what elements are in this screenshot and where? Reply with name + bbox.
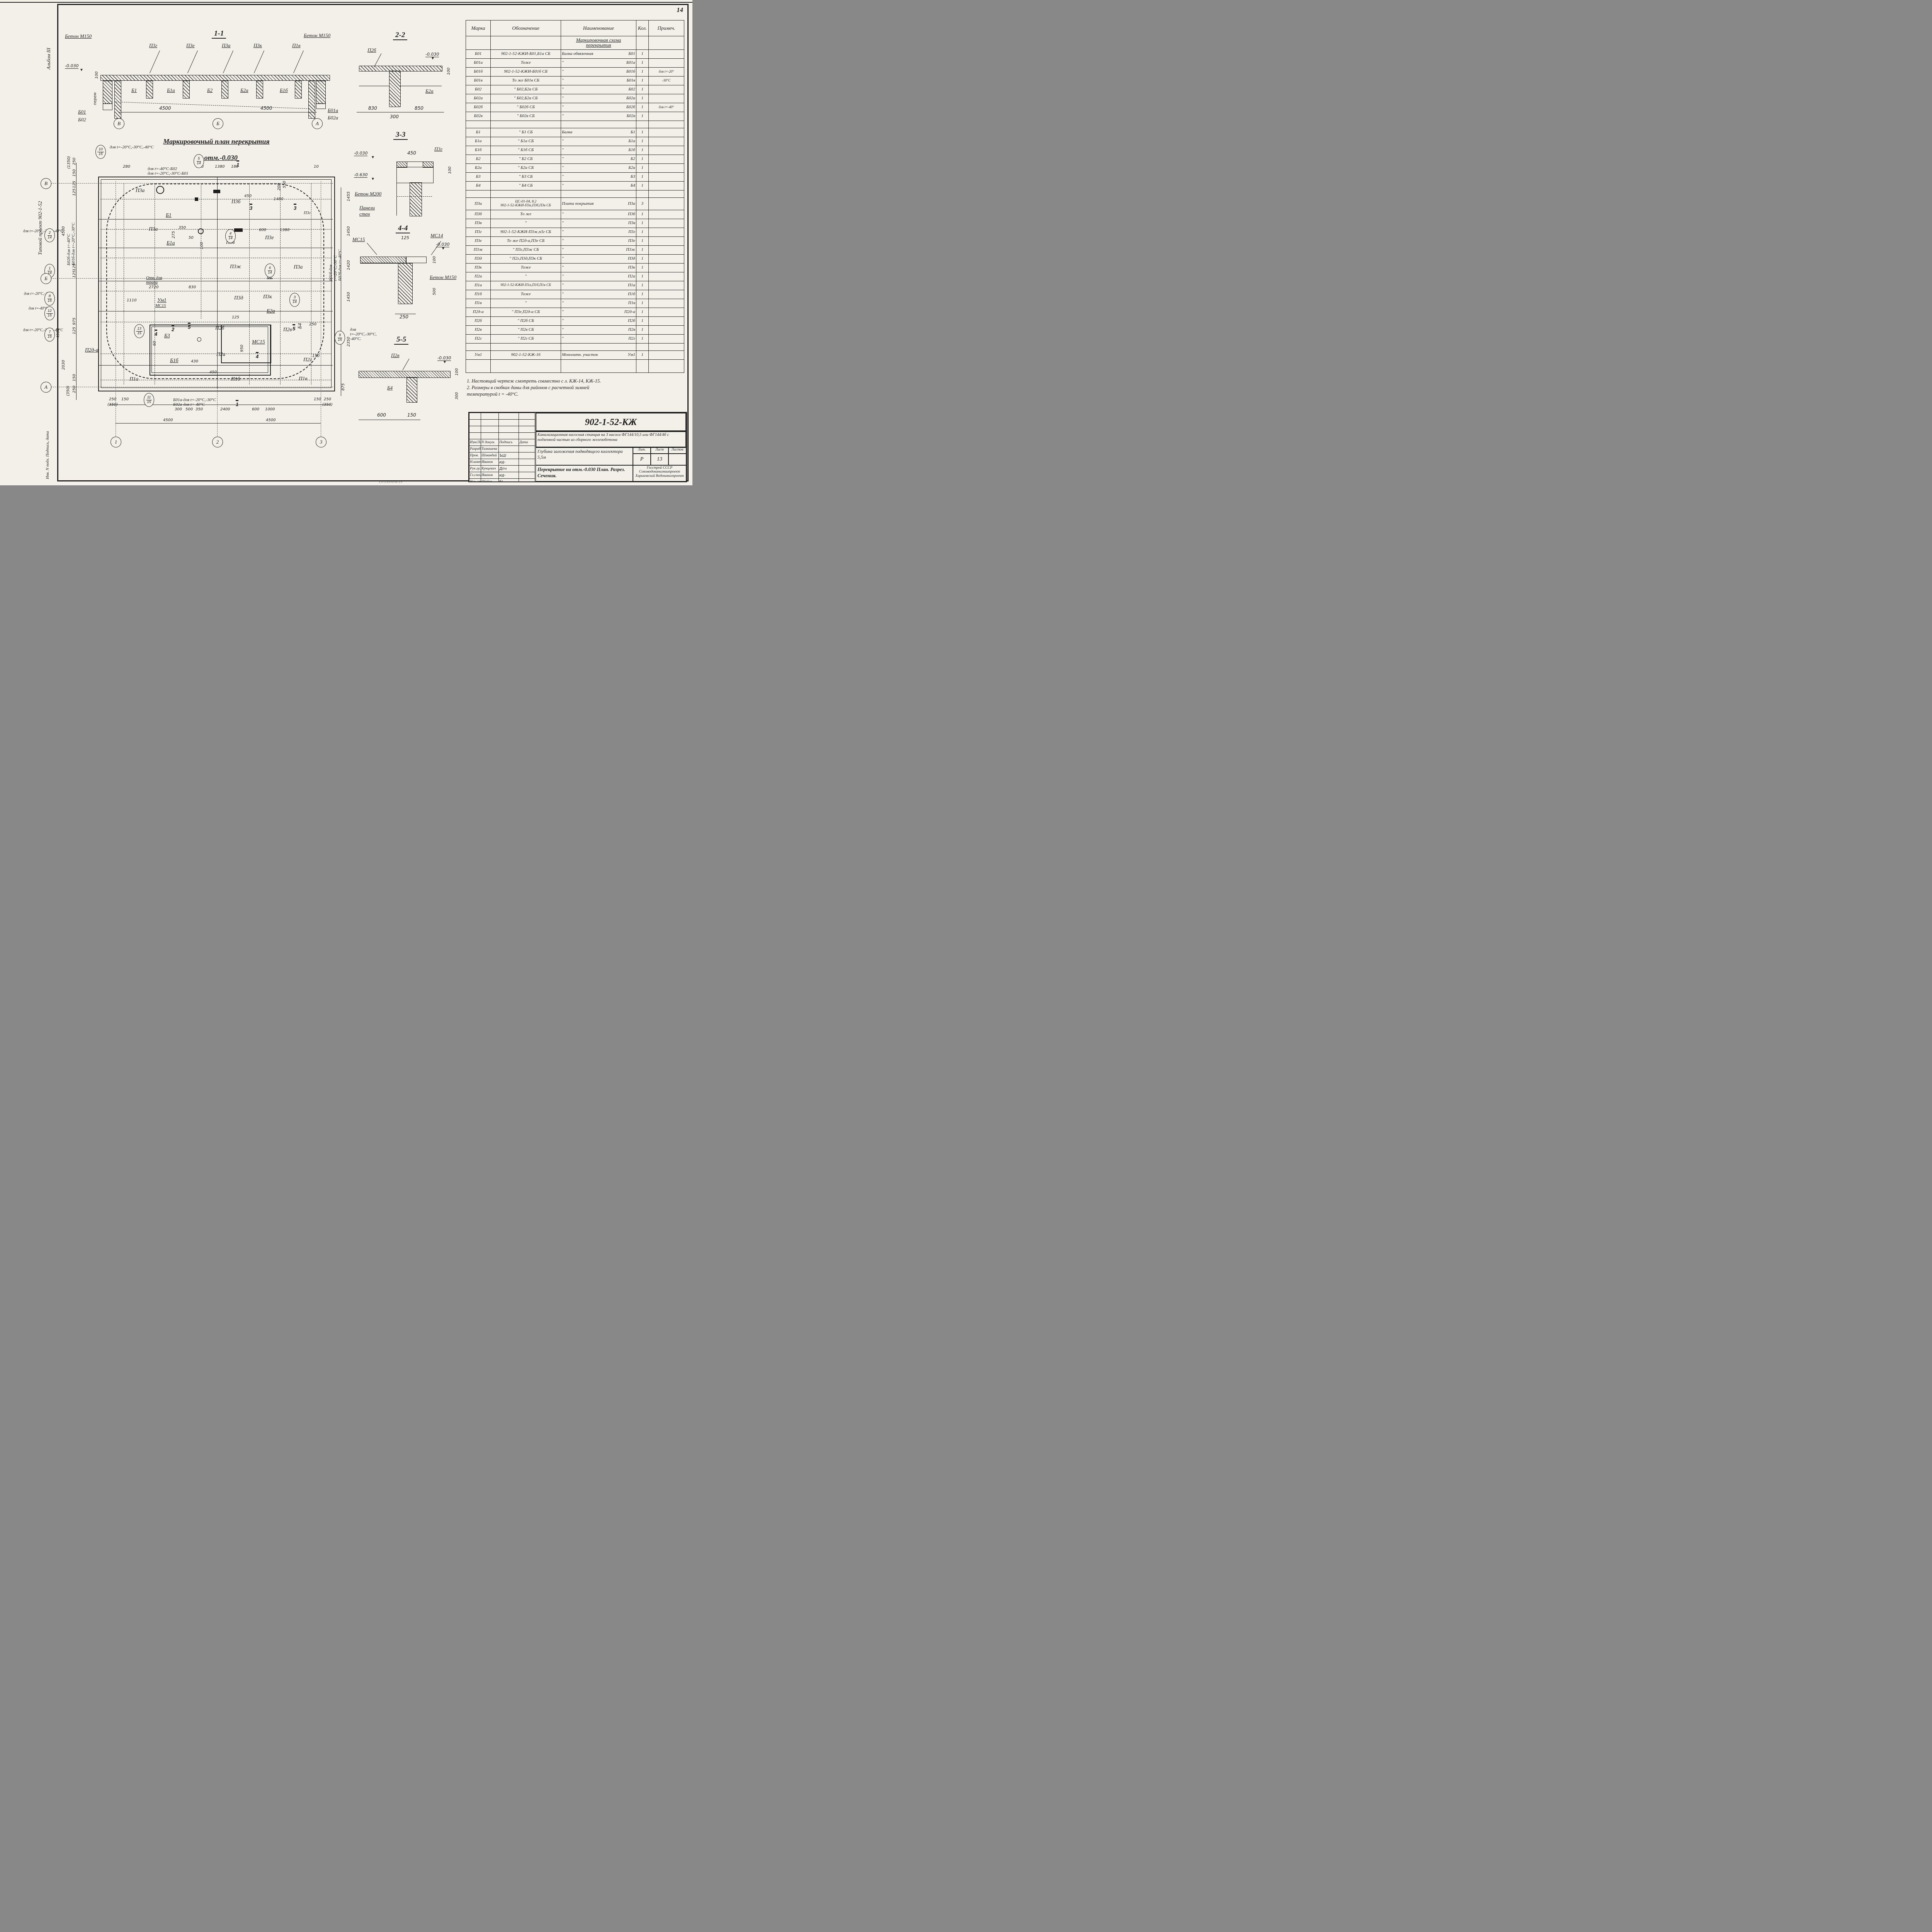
section-cut-mark: 2 (172, 325, 174, 332)
callout-denominator: 15 (137, 332, 141, 335)
plan-callout: 1315 (134, 324, 145, 338)
col-header: Примеч. (648, 20, 684, 36)
empty-cell (561, 190, 636, 198)
plan-axis-circle: 2 (212, 437, 223, 447)
beam-label: Б1б (280, 87, 288, 94)
empty-cell (491, 344, 561, 351)
qty-cell: 3 (636, 198, 648, 210)
qty-cell: 1 (636, 128, 648, 137)
note-cell (648, 351, 684, 360)
plan-canvas: Маркировочный план перекрытия на отм.-0.… (23, 129, 363, 454)
section-cut-mark: 1 (236, 160, 239, 168)
leader-line (403, 359, 410, 370)
qty-cell: 1 (636, 290, 648, 299)
note-cell (648, 137, 684, 146)
spec-row: П1в""П1в1 (466, 299, 684, 308)
plan-panel-label: МС15 (155, 303, 166, 308)
dim-300: 300 (390, 114, 399, 119)
qty-cell: 1 (636, 173, 648, 182)
plan-dimension: (350) (322, 403, 333, 407)
name-text: " (562, 301, 564, 306)
beam-flange-line (400, 86, 442, 86)
callout-numerator: 6 (268, 266, 272, 270)
mark-cell: Б02 (466, 85, 491, 94)
slab-label: П2б (367, 47, 376, 53)
staff-row: Пров.ШмандийЪШ (469, 452, 535, 459)
beam-label: Б4 (387, 385, 393, 391)
spec-row: Б02" Б02,Б2а СБ"Б021 (466, 85, 684, 94)
designation-cell: ЦС-01-04, 8.2 902-1-52-КЖИ-П3а,П3б,П3в С… (491, 198, 561, 210)
staff-name: Шмандий (481, 452, 499, 459)
spec-row: П2в" П2в СБ"П2в1 (466, 326, 684, 335)
designation-cell: " Б2 СБ (491, 155, 561, 164)
spec-row: Б1" Б1 СББалкаБ11 (466, 128, 684, 137)
qty-cell: 1 (636, 219, 648, 228)
designation-cell: " П2в СБ (491, 326, 561, 335)
callout-denominator: 15 (48, 314, 52, 318)
dim-variable: перем (94, 92, 98, 105)
qty-cell: 1 (636, 228, 648, 237)
plan-dimension: 2400 (220, 408, 230, 412)
name-mark: П1в (628, 301, 635, 306)
designation-cell: " П2б СБ (491, 317, 561, 326)
name-mark: Б2 (631, 157, 635, 162)
drawing-sheet: Альбом III Типовой проект 902-1-52 Инв. … (0, 0, 692, 485)
name-text: Плита покрытия (562, 202, 594, 206)
name-wrap: "Б1б (562, 148, 635, 153)
plan-panel-label: П3а (294, 264, 303, 270)
name-mark: Б1а (628, 139, 635, 144)
empty-cell (636, 190, 648, 198)
empty-cell (469, 426, 481, 433)
name-wrap: "Б01в (562, 78, 635, 83)
plan-panel-label: П1в (299, 376, 307, 382)
plan-dimension: 280 (123, 165, 130, 169)
spec-spacer-row (466, 344, 684, 351)
concrete-note: Бетон М150 (430, 274, 456, 281)
staff-role: Рук.гр. (469, 466, 481, 472)
name-text: " (562, 310, 564, 315)
name-mark: П3в (628, 221, 635, 226)
plan-axis-circle: 1 (111, 437, 121, 447)
plan-dimension: 100 (200, 242, 204, 249)
empty-cell (499, 420, 519, 426)
elevation-flag-icon: ▼ (80, 68, 83, 72)
plan-callout: 514 (194, 154, 204, 168)
section-3-3: 3-3 -0.030 ▼ -0.630 ▼ 450 П3г 100 Бетон … (351, 131, 460, 223)
revision-empty-row (469, 433, 535, 439)
name-cell: "Б01в (561, 77, 636, 85)
spec-row: Б01вТо же Б01в СБ"Б01в1-30°C (466, 77, 684, 85)
plan-callout: 715 (44, 328, 55, 342)
beam-line (99, 248, 333, 248)
plan-callout: 1215 (44, 306, 55, 320)
name-wrap: "Б02б (562, 105, 635, 110)
callout-numerator: 9 (338, 333, 342, 338)
plan-dimension: 1380 (280, 228, 289, 233)
name-text: " (562, 212, 564, 217)
name-text: " (562, 292, 564, 297)
empty-cell (648, 36, 684, 50)
note-cell (648, 228, 684, 237)
revision-rows: Изм/ЛистN докум.ПодписьДатаРазраб.Тимаше… (469, 413, 535, 482)
joint-dashed-v (311, 184, 311, 384)
name-cell: Балка обвязочнаяБ01 (561, 50, 636, 59)
designation-cell: То же П2д-а,П3е СБ (491, 237, 561, 246)
doc-number-cell: 902-1-52-КЖ (536, 413, 686, 431)
name-mark: П3ж (626, 248, 635, 252)
callout-numerator: 5 (197, 157, 201, 161)
title-block-left: Изм/ЛистN докум.ПодписьДатаРазраб.Тимаше… (469, 413, 536, 481)
note-cell (648, 219, 684, 228)
note-cell (648, 94, 684, 103)
designation-cell: " Б02,Б2а СБ (491, 94, 561, 103)
plan-dimension: 600 (259, 228, 266, 233)
leader-line (254, 51, 264, 73)
name-text: " (562, 221, 564, 226)
beam-b2a (256, 81, 263, 99)
mark-cell: Б02а (466, 94, 491, 103)
plan-dimension: 125 (73, 189, 77, 196)
plan-axis-circle: Б (41, 273, 51, 284)
spec-row: П3бТо же"П3б1 (466, 210, 684, 219)
note-cell (648, 155, 684, 164)
name-cell: "П2д-а (561, 308, 636, 317)
empty-cell (519, 433, 535, 439)
name-mark: П2д-а (624, 310, 635, 315)
designation-cell: " Б1б СБ (491, 146, 561, 155)
qty-cell: 1 (636, 103, 648, 112)
name-mark: П2а (628, 274, 635, 279)
empty-cell (466, 190, 491, 198)
name-cell: БалкаБ1 (561, 128, 636, 137)
name-text: Балка (562, 130, 572, 135)
plan-dimension: 60 (153, 341, 157, 346)
corner-sheet-number: 14 (677, 6, 683, 14)
plan-title: Маркировочный план перекрытия на отм.-0.… (128, 129, 305, 162)
plan-callout: 1115 (144, 393, 154, 407)
plan-dimension: 600 (252, 408, 259, 412)
spec-row: П1а902-1-52-КЖИ-П1а,П1б,П1в СБ"П1а1 (466, 281, 684, 290)
beam-flange-line (359, 86, 389, 86)
name-mark: Б1б (628, 148, 635, 153)
plan-dimension: 250 (324, 398, 331, 402)
designation-cell: " (491, 299, 561, 308)
empty-cell (636, 36, 648, 50)
empty-cell (519, 413, 535, 420)
plan-title-line1: Маркировочный план перекрытия (163, 138, 269, 145)
plan-callout: 815 (44, 292, 55, 306)
plan-panel-label: МС15 (252, 339, 265, 345)
staff-row: Рук.гр.КунцевичДпч (469, 466, 535, 472)
general-notes: 1. Настоящий чертеж смотреть совместно с… (467, 378, 685, 398)
callout-denominator: 14 (197, 162, 201, 165)
callout-denominator: 15 (48, 335, 52, 339)
name-text: " (562, 70, 564, 74)
name-wrap: Балка обвязочнаяБ01 (562, 52, 635, 56)
excavation-dashed-line (116, 102, 309, 109)
staff-role: Гл.спец. (469, 472, 481, 479)
callout-denominator: 15 (48, 299, 52, 303)
plan-dimension: 150 (121, 398, 129, 402)
empty-cell (491, 36, 561, 50)
callout-numerator: 8 (48, 294, 52, 299)
name-cell: "П3ж (561, 246, 636, 255)
name-mark: П2б (628, 319, 635, 323)
spec-spacer-row (466, 190, 684, 198)
slab-label: П3е (186, 43, 195, 49)
opening-filled (234, 228, 243, 232)
plan-dimension: 250 (309, 323, 316, 327)
mark-cell: П2а (466, 272, 491, 281)
name-wrap: Монолитн. участокУм1 (562, 353, 635, 357)
plan-callout: 915 (335, 331, 345, 345)
plan-panel-label: П2г (303, 357, 312, 363)
beam-label: Б2а (425, 88, 434, 94)
paper-edge (0, 2, 692, 3)
mark-cell: П3а (466, 198, 491, 210)
note-cell (648, 299, 684, 308)
spec-row: П2д-а" П3е,П2д-а СБ"П2д-а1 (466, 308, 684, 317)
note-cell (648, 290, 684, 299)
elevation-flag-icon: ▼ (371, 155, 375, 160)
name-cell: "Б02 (561, 85, 636, 94)
name-cell: "П3к (561, 264, 636, 272)
plan-dimension: 2720 (149, 286, 158, 290)
plan-dimension: 975 (73, 318, 77, 325)
spec-row: Б02в" Б02в СБ"Б02в1 (466, 112, 684, 121)
qty-cell: 1 (636, 335, 648, 344)
mark-cell: П1а (466, 281, 491, 290)
name-cell: "П2г (561, 335, 636, 344)
slab-label: П3г (149, 43, 157, 49)
staff-role: Н.контр. (469, 459, 481, 466)
beam-label: Б1а (167, 87, 175, 94)
note-line: 1. Настоящий чертеж смотреть совместно с… (467, 378, 685, 384)
plan-dimension: 500 (185, 408, 193, 412)
name-text: " (562, 139, 564, 144)
empty-cell (636, 360, 648, 373)
name-wrap: "Б02а (562, 96, 635, 101)
spec-row: Б01аТоже"Б01а1 (466, 59, 684, 68)
name-wrap: "Б4 (562, 184, 635, 188)
staff-date (519, 459, 535, 466)
name-mark: Б01в (627, 78, 635, 83)
callout-numerator: 3 (293, 296, 297, 300)
plan-dimension: 350 (179, 226, 186, 230)
title-block: Изм/ЛистN докум.ПодписьДатаРазраб.Тимаше… (468, 412, 687, 482)
spec-row: Б2а" Б2а СБ"Б2а1 (466, 164, 684, 173)
callout-denominator: 14 (48, 236, 52, 240)
spec-row: Б01902-1-52-КЖИ-Б01,Б1а СББалка обвязочн… (466, 50, 684, 59)
flange-line (360, 263, 398, 264)
section-cut-mark: 4 (256, 352, 259, 359)
spec-row: П3ж" П3г,П3ж СБ"П3ж1 (466, 246, 684, 255)
spec-header-row: Марка Обозначение Наименование Кол. Прим… (466, 20, 684, 36)
mark-cell: Б3 (466, 173, 491, 182)
plan-dimension: 1380 (215, 165, 224, 169)
name-cell: "П3г (561, 228, 636, 237)
mark-cell: Б1 (466, 128, 491, 137)
section-cut-mark: 3 (294, 204, 296, 211)
qty-cell: 1 (636, 94, 648, 103)
plan-dimension: 1480 (274, 197, 283, 202)
plan-panel-label: П1б (231, 376, 240, 382)
beam-b01 (103, 81, 112, 104)
designation-cell: 902-1-52-КЖИ-П1а,П1б,П1в СБ (491, 281, 561, 290)
name-wrap: "П2д-а (562, 310, 635, 315)
plan-temperature-note: Б02б-для t=-40°C Б01б-для t=-20°C,-30°C (66, 223, 76, 265)
empty-cell (469, 433, 481, 439)
empty-cell (469, 413, 481, 420)
designation-cell: " Б02в СБ (491, 112, 561, 121)
beam-outline (396, 167, 434, 183)
plan-dimension: 275 (172, 231, 176, 238)
joint-dashed (100, 258, 332, 258)
col-header: Кол. (636, 20, 648, 36)
name-text: Балка обвязочная (562, 52, 593, 56)
name-text: " (562, 230, 564, 235)
elevation-flag-icon: ▼ (443, 360, 447, 364)
designation-cell: Тоже (491, 264, 561, 272)
spec-row: П3д" П2г,П3д,П3к СБ"П3д1 (466, 255, 684, 264)
callout-numerator: 1 (48, 267, 52, 271)
collector-note: Глубина заложения подводящего коллектора… (536, 448, 633, 462)
plan-dimension: (1350) (67, 156, 71, 169)
note-cell (648, 182, 684, 190)
leader-line (374, 53, 382, 67)
qty-cell: 1 (636, 317, 648, 326)
mark-cell: Б2а (466, 164, 491, 173)
drain-hole-circle (197, 337, 201, 342)
spec-spacer-row (466, 121, 684, 128)
mark-cell: П2д-а (466, 308, 491, 317)
dim-100: 100 (95, 71, 99, 79)
spec-row: П2а""П2а1 (466, 272, 684, 281)
empty-cell (481, 433, 499, 439)
beam-b1a (183, 81, 190, 99)
plan-dimension: 1110 (127, 299, 136, 303)
designation-cell: Тоже (491, 290, 561, 299)
plan-dimension: 1000 (265, 408, 275, 412)
empty-cell (561, 121, 636, 128)
name-cell: "П2б (561, 317, 636, 326)
note-cell (648, 198, 684, 210)
lit-value-cell: Р (633, 454, 651, 465)
bottom-stamp: 13-193-0-4-15 (379, 480, 402, 484)
slab-top-line (406, 162, 423, 162)
name-cell: "П2а (561, 272, 636, 281)
name-cell: "Б02в (561, 112, 636, 121)
name-cell: "П2в (561, 326, 636, 335)
axis-circle-v: В (114, 118, 124, 129)
name-wrap: "Б01б (562, 70, 635, 74)
staff-role: Пров. (469, 452, 481, 459)
hole-circle (198, 228, 204, 234)
section-cut-mark: 5 (188, 323, 190, 330)
mark-cell: Ум1 (466, 351, 491, 360)
staff-name: Иванов (481, 459, 499, 466)
note-cell: для t=-20° (648, 68, 684, 77)
beam-label: Б2а (240, 87, 248, 94)
list-value: 13 (651, 454, 668, 465)
name-text: " (562, 184, 564, 188)
dim-450: 450 (407, 151, 416, 156)
qty-cell: 1 (636, 308, 648, 317)
name-cell: "П1б (561, 290, 636, 299)
spec-row: П3еТо же П2д-а,П3е СБ"П3е1 (466, 237, 684, 246)
revision-empty-row (469, 413, 535, 420)
note-cell (648, 85, 684, 94)
name-wrap: "П3г (562, 230, 635, 235)
sheet-title-cell: Перекрытие на отм.-0.030 План. Разрез. С… (536, 465, 633, 481)
mark-cell: П3е (466, 237, 491, 246)
elevation-mark: -0.030 (65, 63, 78, 69)
section-4-4: 4-4 125 МС15 МС14 -0.030 ▼ 100 Бетон М15… (349, 224, 464, 321)
qty-cell: 1 (636, 237, 648, 246)
callout-denominator: 14 (268, 271, 272, 275)
mark-cell: Б02в (466, 112, 491, 121)
revision-header-cell: Изм/Лист (469, 439, 481, 446)
span-dim: 4500 (260, 106, 272, 111)
name-mark: Б02а (626, 96, 635, 101)
plan-dimension: 1450 (347, 226, 351, 236)
spec-row: П3в""П3в1 (466, 219, 684, 228)
name-mark: П2в (628, 328, 635, 332)
section-cut-mark: 3 (250, 204, 252, 211)
note-cell (648, 112, 684, 121)
designation-cell: То же Б01в СБ (491, 77, 561, 85)
name-text: " (562, 105, 564, 110)
designation-cell: " (491, 272, 561, 281)
plan-temperature-note: для t=-20°C,-30°C,-40°C (23, 328, 63, 332)
plan-dimension: (350) (66, 386, 71, 396)
joint-dashed (100, 199, 332, 199)
beam-b2 (221, 81, 228, 99)
name-wrap: "Б2 (562, 157, 635, 162)
revision-header-row: Изм/ЛистN докум.ПодписьДата (469, 439, 535, 446)
group-title: Маркировочная схема перекрытия (561, 36, 636, 50)
beam-b02a (316, 103, 326, 109)
note-cell (648, 146, 684, 155)
callout-numerator: 10 (97, 148, 104, 152)
plan-panel-label: Б1б (170, 357, 179, 364)
col-header: Марка (466, 20, 491, 36)
name-cell: "П1а (561, 281, 636, 290)
empty-cell (636, 344, 648, 351)
name-text: " (562, 175, 564, 179)
callout-denominator: 14 (228, 236, 233, 240)
wall-edge (396, 182, 397, 216)
beam-b01a (316, 81, 326, 104)
name-text: " (562, 148, 564, 153)
name-mark: Б02в (627, 114, 635, 119)
designation-cell: 902-1-52-КЖИ-Б01б СБ (491, 68, 561, 77)
dim-125: 125 (401, 236, 409, 240)
spec-row: Б02б" Б02б СБ"Б02б1для t=-40° (466, 103, 684, 112)
staff-date (519, 472, 535, 479)
name-mark: Ум1 (628, 353, 635, 357)
section-5-5-title: 5-5 (394, 335, 408, 345)
note-cell (648, 246, 684, 255)
name-cell: "Б2 (561, 155, 636, 164)
dim-100: 100 (433, 256, 437, 264)
plan-panel-label: П3б (231, 199, 240, 205)
dim-100: 100 (455, 368, 459, 376)
empty-cell (466, 121, 491, 128)
name-text: " (562, 337, 564, 341)
section-1-1-title: 1-1 (212, 29, 226, 39)
